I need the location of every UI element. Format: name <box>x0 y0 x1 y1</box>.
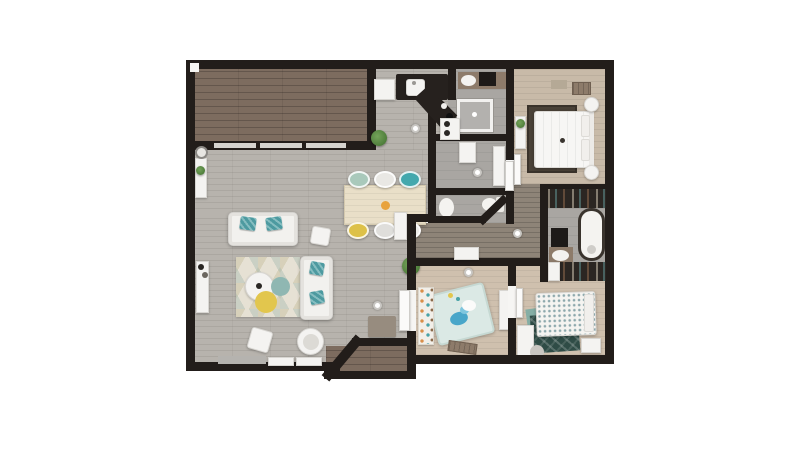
master-bed-button <box>560 138 565 143</box>
wc-sink <box>439 198 454 217</box>
dining-chair-white-top <box>374 171 396 188</box>
ceiling-light-hallway <box>513 229 522 238</box>
bathtub-faucet <box>587 245 596 254</box>
shelf-plant <box>196 166 205 175</box>
master-pillow-1 <box>581 115 590 137</box>
fridge <box>374 79 395 100</box>
dining-chair-yellow <box>347 222 369 239</box>
wall-kids-bedroom2-lower <box>508 318 516 355</box>
dining-bowl <box>381 201 390 210</box>
round-armchair-seat <box>303 334 319 350</box>
bath2-cabinet <box>493 146 505 186</box>
washer-door-2 <box>444 130 450 136</box>
window-sill-2 <box>296 357 322 366</box>
bath3-sink <box>552 250 569 261</box>
closet-top <box>548 189 606 208</box>
wall-top <box>186 60 614 69</box>
master-decor-tag <box>551 80 567 89</box>
terrace-slider-2 <box>260 143 302 148</box>
ceiling-light-kids <box>464 268 473 277</box>
wall-deck-top <box>352 338 410 346</box>
hall-bench <box>454 247 479 260</box>
washer-door-1 <box>444 121 450 127</box>
window-sill-1 <box>268 357 294 366</box>
coffee-table-decor <box>256 283 262 289</box>
wall-hall-top <box>407 214 436 222</box>
dining-chair-mint <box>348 171 370 188</box>
bath2-mat <box>459 142 476 163</box>
sofa-top-pillow-right <box>265 216 283 231</box>
bedroom2-door-gap <box>508 286 516 318</box>
shower-drain <box>472 112 477 117</box>
wall-clock <box>195 146 208 159</box>
ceiling-light-dining <box>411 124 420 133</box>
wall-bottom-right <box>416 355 614 364</box>
bedroom2-nightstand <box>581 338 601 353</box>
wall-left <box>186 60 195 371</box>
wall-divider-bath2-wc <box>428 188 514 195</box>
wall-baths-right-upper <box>506 60 514 160</box>
sofa-top <box>228 212 298 246</box>
terrace-floor <box>194 69 367 142</box>
doormat <box>368 316 396 337</box>
sofa-right-pillow-top <box>309 261 325 276</box>
dining-chair-gray <box>374 222 396 239</box>
wall-hall-bottom <box>416 258 548 266</box>
kids-door-leaf <box>399 290 410 331</box>
floor-plan-canvas <box>0 0 800 450</box>
master-round-chair-bottom <box>584 165 599 180</box>
kids-toy-teal <box>456 297 460 301</box>
wall-baths-right-lower <box>506 192 514 224</box>
radiator <box>218 356 266 364</box>
wall-kids-left-upper <box>407 214 416 290</box>
pouf-yellow <box>255 291 277 313</box>
dining-chair-teal <box>399 171 421 188</box>
kitchen-item-white <box>441 103 447 109</box>
master-console-plant <box>516 119 525 128</box>
pouf-teal <box>271 277 290 296</box>
wall-kids-left-lower <box>407 338 416 379</box>
tv-speaker-1 <box>198 264 204 270</box>
bath3-mirror <box>551 228 568 247</box>
kitchen-plant <box>371 130 387 146</box>
playmat-cloud <box>462 300 476 311</box>
bedroom2-pillow <box>584 294 594 332</box>
kitchen-faucet <box>412 81 416 85</box>
ceiling-light-living <box>373 301 382 310</box>
wall-kids-bedroom2-upper <box>508 258 516 286</box>
bath1-mirror <box>479 72 496 86</box>
terrace-slider-3 <box>306 143 346 148</box>
terrace-slider-1 <box>214 143 256 148</box>
tv-speaker-2 <box>202 272 208 278</box>
bath2-door-leaf <box>505 161 514 191</box>
wall-shelf-left <box>195 158 207 198</box>
corner-post <box>190 63 199 72</box>
ceiling-light-bath2 <box>473 168 482 177</box>
square-pouf-top <box>310 225 332 246</box>
wall-bath3-left <box>540 184 548 282</box>
master-door-leaf <box>514 154 521 185</box>
washer-stack <box>440 118 460 140</box>
wall-deck-bottom <box>324 371 416 379</box>
bedroom2-door-leaf <box>516 288 523 318</box>
kids-toy-yellow <box>448 293 453 298</box>
wall-bath1-left <box>448 60 456 100</box>
wall-right <box>605 60 614 364</box>
hallway-floor-horizontal <box>416 223 548 258</box>
sofa-right-pillow-bottom <box>309 290 325 305</box>
bath1-sink <box>461 75 476 86</box>
closet-shelf-white <box>548 262 560 281</box>
dining-sideboard <box>394 212 407 240</box>
kids-polka-rug <box>418 287 434 345</box>
master-pillow-2 <box>581 139 590 161</box>
sofa-top-pillow-left <box>239 216 257 231</box>
master-round-chair-top <box>584 97 599 112</box>
master-bench <box>572 82 591 95</box>
